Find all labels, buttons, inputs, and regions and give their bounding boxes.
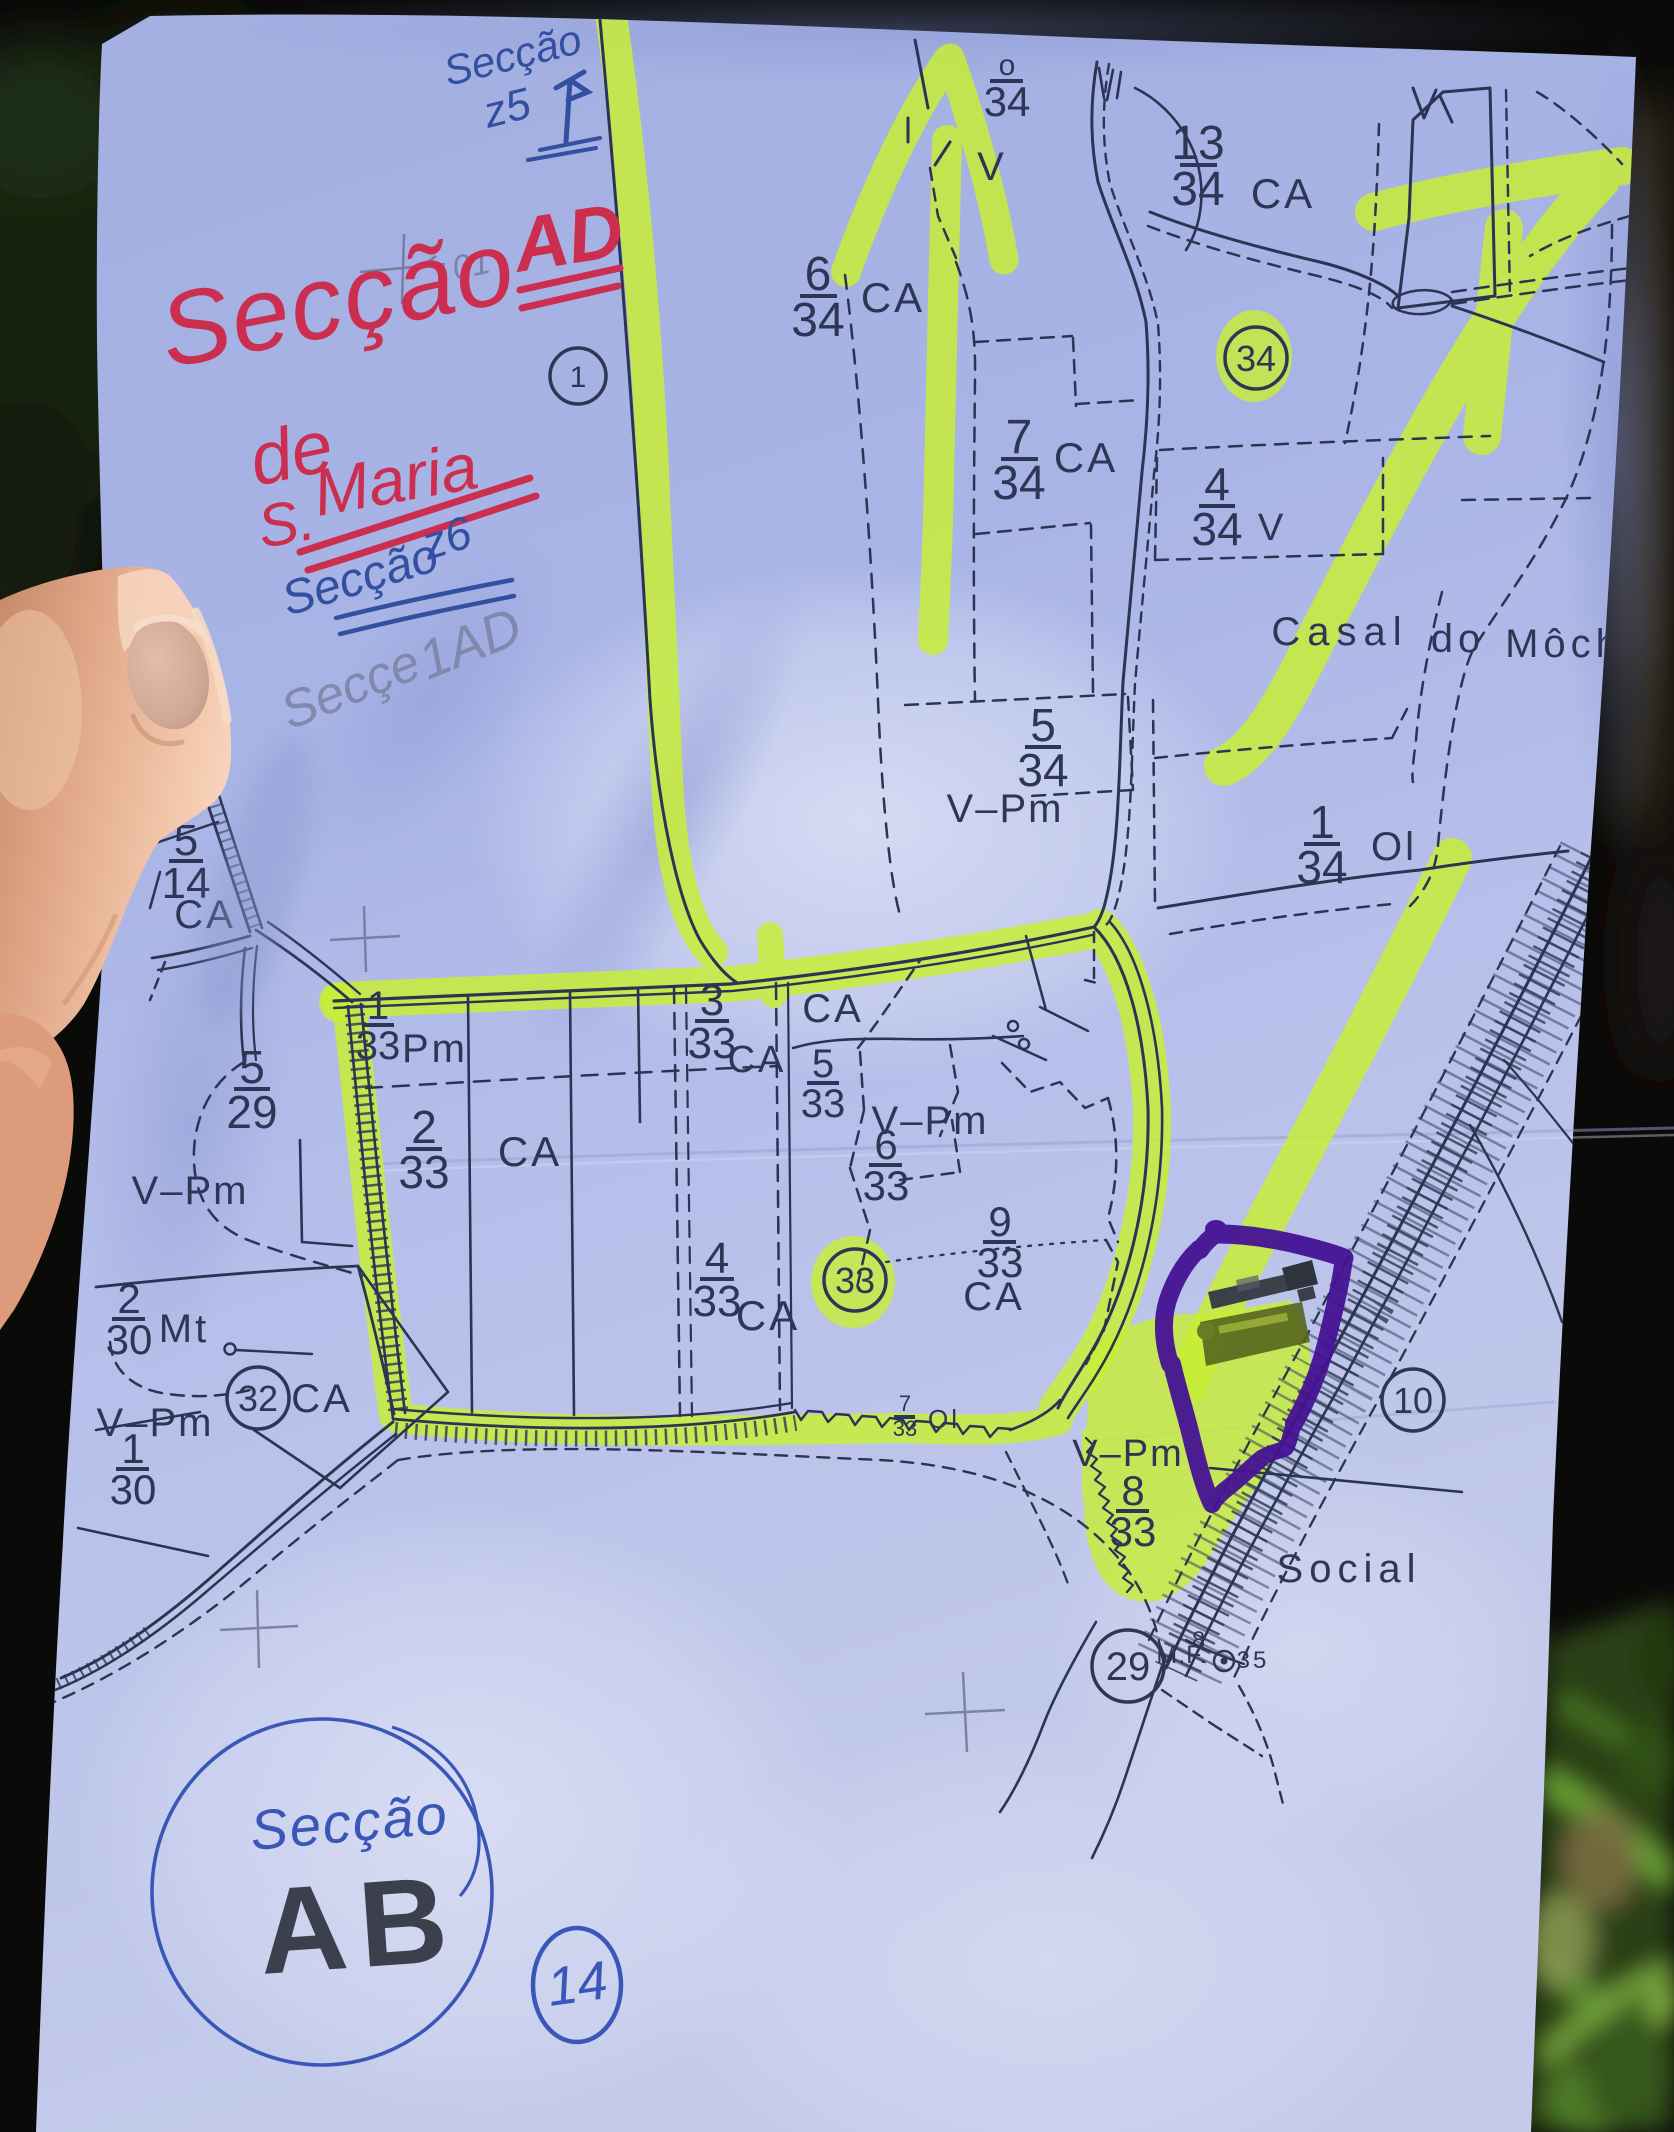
svg-text:CA: CA [1251,170,1315,217]
svg-text:33: 33 [356,1024,401,1068]
svg-text:CA: CA [1054,434,1118,481]
svg-text:30: 30 [110,1466,157,1513]
svg-text:34: 34 [1171,163,1224,216]
svg-text:Casal: Casal [1271,610,1408,654]
svg-text:AB: AB [254,1850,463,2000]
svg-text:29: 29 [226,1086,277,1138]
svg-text:4: 4 [705,1234,729,1283]
svg-text:33: 33 [1110,1508,1157,1555]
svg-text:33: 33 [893,1416,917,1441]
svg-text:34: 34 [992,457,1045,510]
svg-text:34: 34 [791,294,844,347]
svg-text:Social: Social [1277,1547,1422,1591]
svg-text:7: 7 [899,1391,911,1416]
svg-text:34: 34 [1236,338,1276,379]
svg-text:14: 14 [543,1950,611,2018]
svg-text:34: 34 [1296,841,1347,893]
svg-text:2: 2 [117,1275,140,1322]
svg-text:AD: AD [505,188,629,289]
svg-text:29: 29 [1106,1645,1151,1689]
svg-text:10: 10 [1393,1380,1433,1421]
svg-text:Ol: Ol [1371,825,1417,869]
svg-text:32: 32 [238,1378,278,1419]
svg-text:V: V [1258,507,1286,549]
svg-text:CA: CA [728,1039,787,1081]
svg-text:CA: CA [963,1275,1025,1319]
svg-text:do: do [1431,617,1486,661]
svg-text:V: V [977,145,1007,189]
svg-text:V–Pm: V–Pm [947,787,1064,831]
svg-text:CA: CA [291,1377,353,1421]
svg-text:5: 5 [812,1042,834,1086]
svg-text:33: 33 [693,1277,742,1326]
svg-text:8: 8 [1121,1467,1144,1514]
svg-text:Ol: Ol [928,1404,960,1434]
svg-text:1: 1 [570,361,587,394]
svg-text:33: 33 [863,1162,910,1209]
svg-text:CA: CA [498,1128,562,1175]
svg-text:1: 1 [367,984,389,1028]
svg-text:34: 34 [984,78,1031,125]
svg-text:V–Pm: V–Pm [97,1401,214,1445]
svg-text:V–Pm: V–Pm [132,1169,249,1213]
svg-text:34: 34 [1191,503,1242,555]
svg-text:CA: CA [736,1292,800,1339]
svg-text:6: 6 [874,1121,897,1168]
svg-text:1: 1 [121,1425,144,1472]
svg-text:CA: CA [861,274,925,321]
svg-text:33: 33 [801,1082,846,1126]
svg-text:8: 8 [1192,1627,1208,1654]
svg-text:33: 33 [398,1146,449,1198]
svg-text:Mt: Mt [159,1307,209,1351]
svg-text:30: 30 [106,1316,153,1363]
svg-text:35: 35 [1237,1647,1270,1674]
svg-text:Pm: Pm [402,1027,468,1071]
svg-text:9: 9 [988,1198,1011,1245]
svg-text:33: 33 [835,1260,875,1301]
svg-text:3: 3 [700,976,724,1025]
svg-text:CA: CA [802,987,864,1031]
